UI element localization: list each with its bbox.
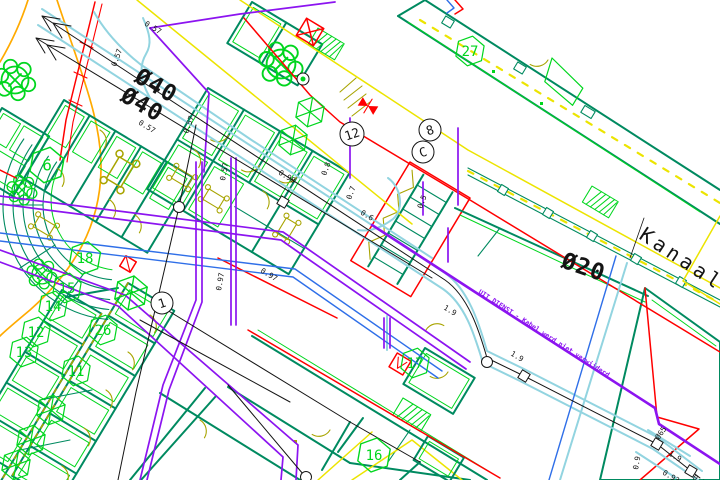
room-number: 11 (68, 364, 85, 380)
top-right-building (398, 0, 720, 224)
arrowhead-double (36, 38, 65, 60)
wing-c (12, 283, 174, 480)
dim-label: 0.57 (181, 115, 196, 135)
dim-label: 0.91 (691, 473, 711, 480)
left-edge-rooms (0, 108, 49, 196)
uit-dienst-label: UIT DIENST - Kabel werd niet verwijderd (477, 288, 611, 379)
node-badge-c: C (412, 141, 434, 163)
dim-label: 0.57 (218, 162, 230, 181)
cluster-a (19, 100, 193, 253)
room-number: 16 (366, 448, 383, 464)
kanaal-line (468, 168, 720, 307)
red-marker-box-small (120, 256, 136, 272)
room-number: 15 (59, 281, 76, 297)
plan-stage: 6 18 15 14 12 13 11 26 27 17 16 12 8 C 1… (0, 0, 720, 480)
red-valve (356, 95, 380, 118)
room-number: 26 (95, 323, 112, 339)
layer-text: Ø40 Ø40 Ø20 Kanaal 90 UIT DIENST - Kabel… (109, 19, 720, 480)
layer-badges: 6 18 15 14 12 13 11 26 27 17 16 12 8 C 1 (0, 34, 489, 480)
hex-symbol (110, 273, 153, 313)
bottom-centre-building (130, 387, 470, 480)
room-number: 13 (16, 345, 33, 361)
dim-label: 1.9 (442, 303, 458, 318)
dim-label: 0.9 (631, 455, 642, 470)
room-badge-11: 11 (57, 354, 94, 389)
node-badge-1: 1 (151, 292, 173, 314)
room-number: 18 (77, 251, 94, 267)
layer-buildings (0, 0, 720, 480)
dim-label: 0.7 (344, 185, 357, 201)
cad-canvas: 6 18 15 14 12 13 11 26 27 17 16 12 8 C 1… (0, 0, 720, 480)
dim-label: 0.57 (109, 48, 124, 68)
dia20-label: Ø20 (557, 248, 609, 287)
dim-label: 0.93 (661, 468, 681, 480)
room-number: 27 (462, 44, 479, 60)
hex-symbol (291, 95, 328, 130)
node-badge-8: 8 (419, 119, 441, 141)
room-badge-26: 26 (84, 313, 121, 348)
room-number: 14 (45, 299, 62, 315)
node-badge-12: 12 (340, 122, 364, 146)
room-number: 6 (42, 156, 52, 175)
mid-right-stub (478, 228, 500, 256)
room-number: 17 (407, 356, 424, 372)
room-number: 12 (28, 325, 45, 341)
dim-label: 0.97 (214, 272, 226, 291)
dim-label: 1.9 (509, 349, 525, 364)
layer-purple (0, 2, 720, 480)
dim-label: 0.57 (143, 19, 163, 36)
mid-right-edge (455, 208, 648, 296)
